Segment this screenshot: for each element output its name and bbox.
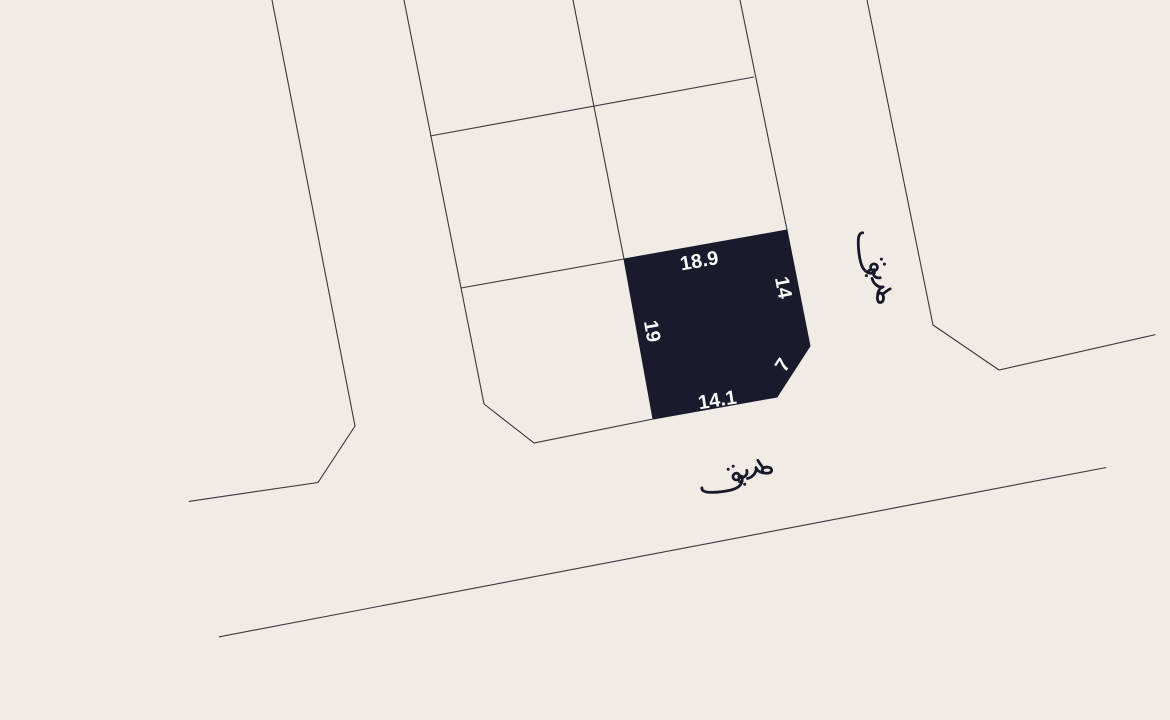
svg-text:14: 14: [770, 275, 796, 301]
svg-text:19: 19: [639, 319, 664, 345]
